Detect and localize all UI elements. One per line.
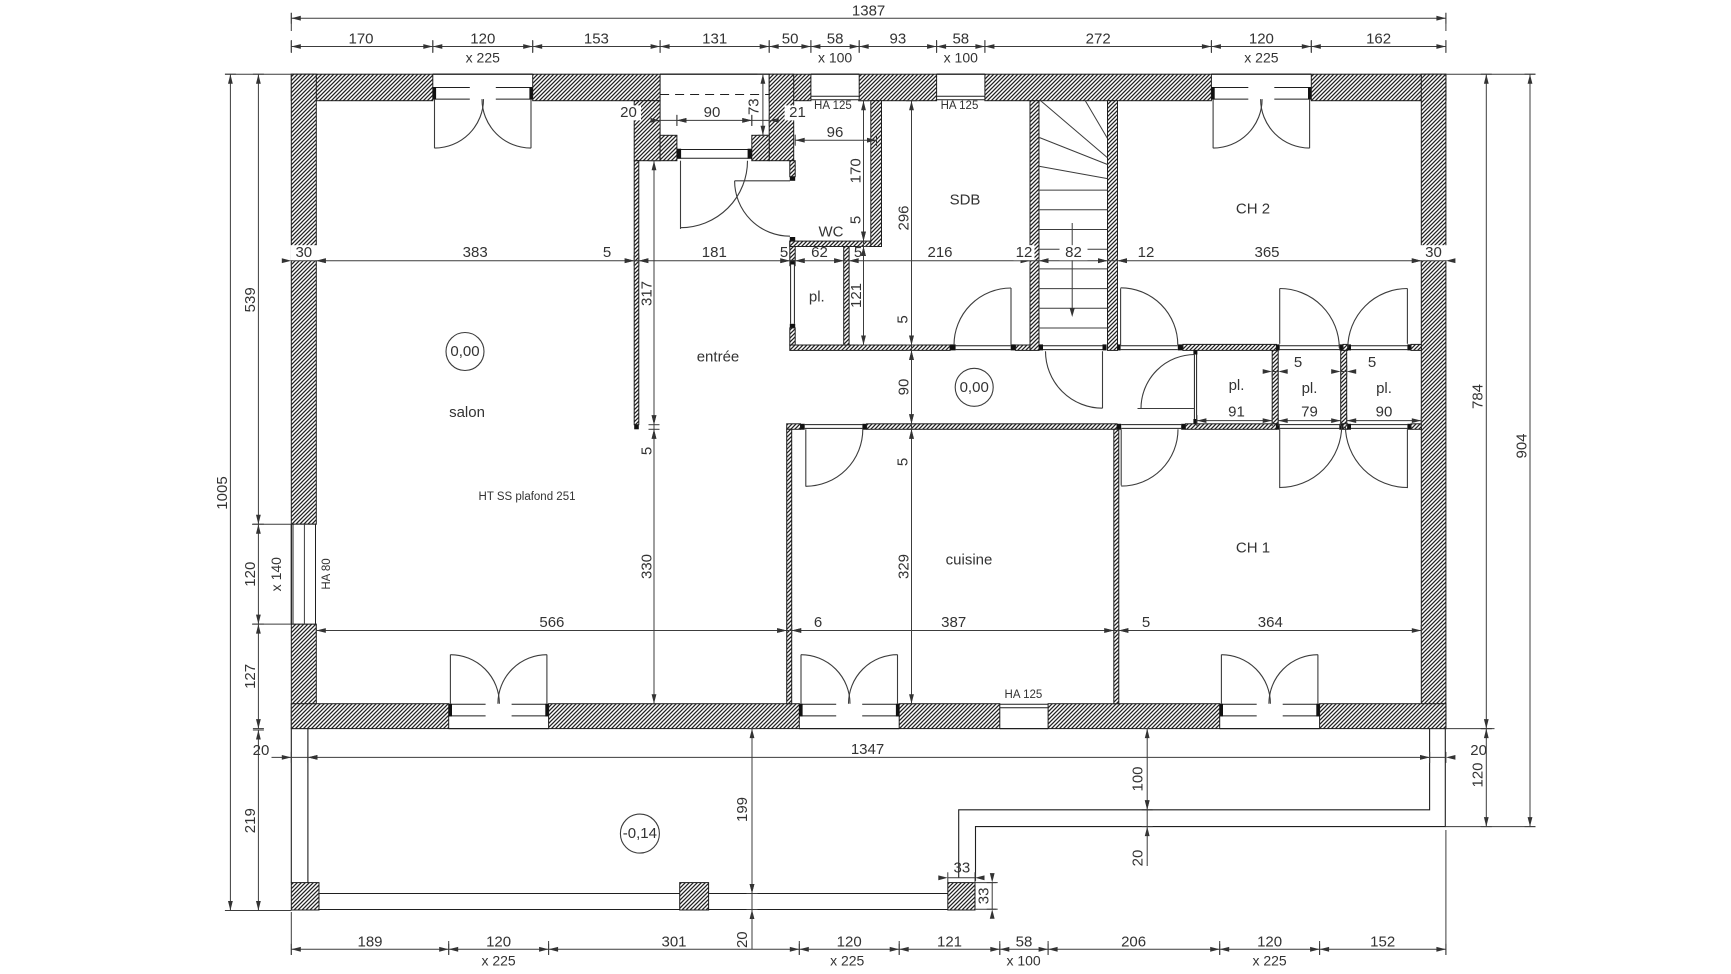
svg-text:HA 125: HA 125	[814, 100, 852, 112]
svg-text:cuisine: cuisine	[946, 552, 993, 569]
svg-text:20: 20	[734, 931, 751, 948]
svg-text:x 225: x 225	[466, 50, 500, 66]
svg-text:21: 21	[789, 104, 806, 121]
svg-text:5: 5	[603, 244, 611, 261]
svg-text:x 100: x 100	[818, 50, 852, 66]
svg-text:120: 120	[1257, 933, 1282, 950]
svg-text:33: 33	[976, 888, 993, 905]
svg-text:566: 566	[539, 614, 564, 631]
svg-text:317: 317	[639, 281, 656, 306]
svg-text:364: 364	[1258, 614, 1283, 631]
svg-text:30: 30	[1425, 244, 1442, 261]
svg-text:120: 120	[470, 31, 495, 48]
svg-text:301: 301	[661, 933, 686, 950]
svg-text:20: 20	[1129, 850, 1146, 867]
svg-text:20: 20	[253, 742, 270, 759]
svg-text:pl.: pl.	[1229, 377, 1245, 394]
svg-text:12: 12	[1016, 244, 1033, 261]
svg-text:0,00: 0,00	[450, 343, 479, 360]
svg-text:91: 91	[1228, 403, 1245, 420]
svg-text:20: 20	[620, 104, 637, 121]
svg-text:127: 127	[242, 664, 259, 689]
svg-text:58: 58	[827, 31, 844, 48]
svg-text:296: 296	[896, 205, 913, 230]
svg-text:784: 784	[1470, 384, 1487, 409]
svg-text:79: 79	[1301, 403, 1318, 420]
svg-text:90: 90	[896, 379, 913, 396]
svg-text:330: 330	[639, 554, 656, 579]
svg-text:CH 1: CH 1	[1236, 540, 1270, 557]
svg-text:152: 152	[1370, 933, 1395, 950]
svg-text:216: 216	[927, 244, 952, 261]
svg-text:HA 125: HA 125	[941, 100, 979, 112]
svg-text:120: 120	[1470, 762, 1487, 787]
svg-text:x 100: x 100	[1006, 952, 1040, 968]
svg-text:90: 90	[704, 104, 721, 121]
svg-text:120: 120	[1249, 31, 1274, 48]
svg-text:121: 121	[848, 283, 865, 308]
svg-text:58: 58	[1016, 933, 1033, 950]
svg-text:5: 5	[894, 315, 911, 323]
svg-text:539: 539	[242, 287, 259, 312]
svg-text:162: 162	[1366, 31, 1391, 48]
svg-text:1387: 1387	[852, 3, 885, 20]
svg-text:1347: 1347	[851, 741, 884, 758]
svg-text:181: 181	[702, 244, 727, 261]
svg-text:6: 6	[814, 614, 822, 631]
svg-text:93: 93	[890, 31, 907, 48]
svg-text:904: 904	[1514, 433, 1531, 458]
svg-text:pl.: pl.	[809, 288, 825, 305]
svg-text:SDB: SDB	[950, 192, 981, 209]
svg-text:5: 5	[894, 458, 911, 466]
svg-text:12: 12	[1138, 244, 1155, 261]
svg-text:73: 73	[745, 98, 762, 115]
svg-text:x 140: x 140	[268, 557, 284, 591]
svg-text:20: 20	[1470, 742, 1487, 759]
svg-text:365: 365	[1254, 244, 1279, 261]
svg-text:62: 62	[811, 244, 828, 261]
svg-text:383: 383	[463, 244, 488, 261]
svg-text:5: 5	[848, 216, 865, 224]
svg-text:5: 5	[1368, 354, 1376, 371]
svg-text:170: 170	[348, 31, 373, 48]
svg-text:120: 120	[486, 933, 511, 950]
svg-text:HA 80: HA 80	[321, 558, 333, 589]
svg-text:33: 33	[954, 860, 971, 877]
svg-text:272: 272	[1086, 31, 1111, 48]
svg-text:189: 189	[357, 933, 382, 950]
svg-text:x 100: x 100	[944, 50, 978, 66]
svg-text:0,00: 0,00	[960, 379, 989, 396]
svg-text:82: 82	[1065, 244, 1082, 261]
svg-text:HT SS plafond 251: HT SS plafond 251	[479, 491, 576, 503]
svg-text:HA 125: HA 125	[1005, 689, 1043, 701]
svg-text:206: 206	[1121, 933, 1146, 950]
svg-text:219: 219	[242, 808, 259, 833]
svg-text:salon: salon	[449, 404, 485, 421]
svg-text:pl.: pl.	[1302, 380, 1318, 397]
svg-text:5: 5	[1142, 614, 1150, 631]
svg-text:153: 153	[584, 31, 609, 48]
svg-text:199: 199	[734, 797, 751, 822]
svg-text:90: 90	[1376, 403, 1393, 420]
svg-text:entrée: entrée	[697, 349, 740, 366]
svg-text:170: 170	[848, 158, 865, 183]
svg-text:1005: 1005	[214, 476, 231, 509]
svg-text:5: 5	[780, 244, 788, 261]
svg-text:pl.: pl.	[1376, 380, 1392, 397]
svg-text:58: 58	[952, 31, 969, 48]
svg-text:131: 131	[702, 31, 727, 48]
svg-text:50: 50	[782, 31, 799, 48]
svg-text:CH 2: CH 2	[1236, 201, 1270, 218]
svg-text:329: 329	[896, 554, 913, 579]
svg-text:121: 121	[937, 933, 962, 950]
svg-text:WC: WC	[819, 224, 844, 241]
svg-text:x 225: x 225	[830, 952, 864, 968]
svg-text:387: 387	[941, 614, 966, 631]
svg-text:120: 120	[242, 562, 259, 587]
svg-text:96: 96	[827, 124, 844, 141]
svg-text:x 225: x 225	[481, 952, 515, 968]
svg-text:x 225: x 225	[1252, 952, 1286, 968]
svg-text:100: 100	[1129, 766, 1146, 791]
svg-text:120: 120	[837, 933, 862, 950]
svg-text:5: 5	[639, 447, 656, 455]
svg-text:5: 5	[1294, 354, 1302, 371]
svg-text:30: 30	[295, 244, 312, 261]
svg-text:-0,14: -0,14	[623, 825, 657, 842]
svg-text:x 225: x 225	[1244, 50, 1278, 66]
